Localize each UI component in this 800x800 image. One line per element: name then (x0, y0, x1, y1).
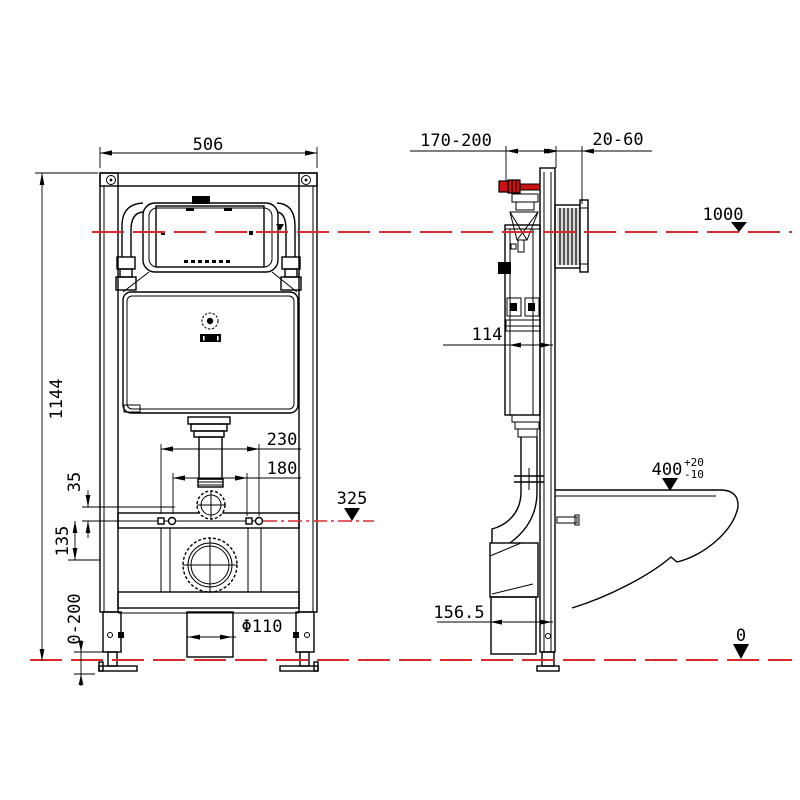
level-325-label: 325 (337, 489, 368, 509)
dim-phi110-label: Φ110 (242, 617, 283, 637)
dim-35-label: 35 (65, 472, 85, 492)
dim-506-label: 506 (193, 135, 224, 155)
drawing-background (0, 0, 800, 800)
dim-156-5-label: 156.5 (433, 603, 484, 623)
technical-drawing: 506 1144 230 180 35 135 (0, 0, 800, 800)
flush-elbow (197, 491, 225, 519)
dim-1144-label: 1144 (47, 379, 67, 420)
dim-180-label: 180 (267, 459, 298, 479)
level-0-label: 0 (736, 626, 746, 646)
actuator-bellows (555, 200, 588, 272)
dim-400-label: 400 (652, 460, 683, 480)
dim-114-label: 114 (472, 325, 503, 345)
dim-135-label: 135 (53, 526, 73, 557)
dim-170-200-label: 170-200 (420, 131, 492, 151)
window-tab (192, 196, 210, 204)
dim-230-label: 230 (267, 430, 298, 450)
dim-400-tol-minus: -10 (684, 468, 704, 481)
dim-0-200-label: 0-200 (65, 593, 85, 644)
dim-20-60-label: 20-60 (592, 130, 643, 150)
drain-coupling (183, 538, 237, 592)
